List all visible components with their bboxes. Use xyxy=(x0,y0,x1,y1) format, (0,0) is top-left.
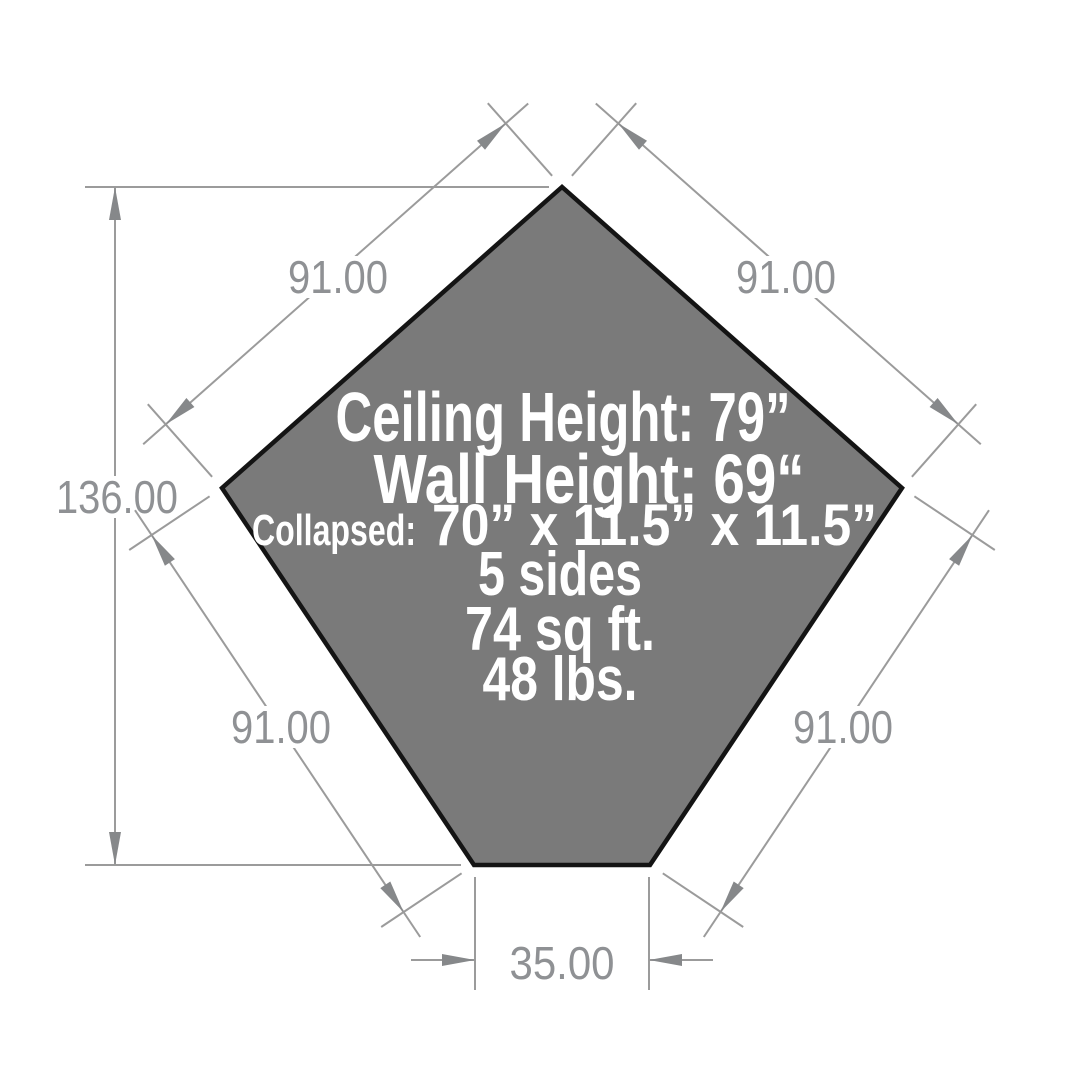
dimension-label-bottom-right: 91.00 xyxy=(793,701,893,753)
extension-line-apex xyxy=(488,103,552,176)
arrow-upper-icon xyxy=(949,535,972,566)
arrow-right-icon xyxy=(442,954,475,966)
diagram-canvas: 136.00 91.00 91.00 91.00 xyxy=(0,0,1080,1080)
arrow-lower-icon xyxy=(720,882,743,913)
dimension-label-bottom: 35.00 xyxy=(510,937,615,989)
arrow-left-icon xyxy=(649,954,682,966)
arrow-lower-icon xyxy=(380,882,403,913)
arrow-upper-icon xyxy=(152,535,175,566)
dimension-diagram: 136.00 91.00 91.00 91.00 xyxy=(0,0,1080,1080)
dimension-label-overall-height: 136.00 xyxy=(56,471,178,523)
dimension-label-top-right: 91.00 xyxy=(736,251,836,303)
extension-line-apex xyxy=(572,103,636,176)
dimension-label-bottom-left: 91.00 xyxy=(231,701,331,753)
extension-line-right-vertex xyxy=(914,496,994,550)
spec-weight: 48 lbs. xyxy=(483,645,638,714)
arrow-up-icon xyxy=(109,187,121,220)
spec-collapsed-label: Collapsed: xyxy=(252,506,416,555)
dimension-label-top-left: 91.00 xyxy=(288,251,388,303)
arrow-down-icon xyxy=(109,832,121,865)
dimension-bottom-edge: 35.00 xyxy=(411,877,713,990)
